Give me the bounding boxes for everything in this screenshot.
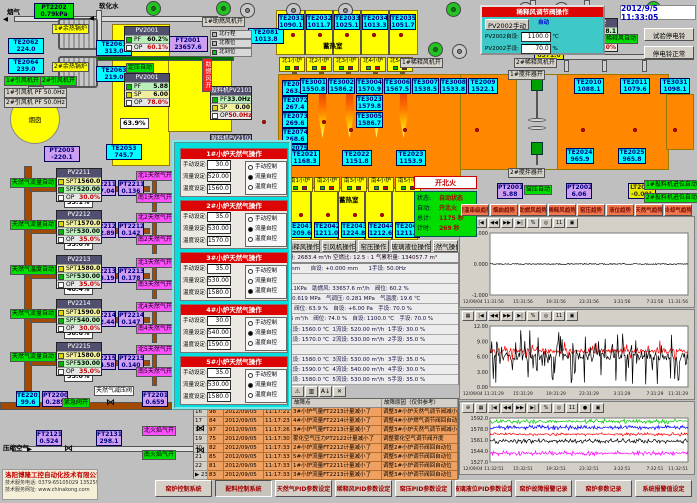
burner-status-leds: [342, 185, 366, 191]
field-label: 手动设定:: [183, 266, 207, 272]
status-lamp: 1#引风机开: [4, 76, 41, 86]
valve-icon[interactable]: ⋈: [196, 447, 205, 456]
pid-tag: PV2001: [125, 27, 169, 35]
pid-row-label: SPT: [66, 178, 77, 185]
pid-faceplate[interactable]: PV2212 SPT 1570.0 SPF 530.00 OP 35.0%: [56, 210, 102, 244]
legend-label: 北行程: [219, 31, 236, 38]
sensor-dot-icon: [380, 213, 384, 217]
tag-value: 1098.1: [661, 86, 689, 93]
pid-row-label: OP: [220, 112, 228, 119]
chart-toolbar-icon[interactable]: ▶|: [527, 403, 539, 413]
chart-toolbar-icon[interactable]: %: [540, 403, 552, 413]
pid-row: SP 0.00: [211, 103, 251, 111]
burner-field: 手动设定:35.0: [183, 212, 245, 222]
tag-indicator: TE3023 1579.8: [356, 95, 383, 111]
trend-button[interactable]: 天然气趋势: [635, 204, 663, 216]
control-mode-radios: 手动控制 流量自控 温度自控: [245, 369, 287, 403]
pid-row-label: SPF: [66, 186, 77, 193]
tag-indicator: TE2025 965.8: [618, 148, 646, 164]
valve-icon[interactable]: ⋈: [64, 445, 73, 454]
alarm-reason: 调整4#小炉燃气调节阀回自动位: [382, 417, 458, 426]
tag-indicator: TE2011 1079.6: [620, 78, 650, 94]
pid-row-label: OP: [66, 281, 79, 288]
sensor-dot-icon: [673, 128, 677, 132]
chart-toolbar-icon[interactable]: ▦: [462, 311, 474, 321]
svg-text:1544.0: 1544.0: [471, 449, 489, 455]
status-lamp: ▶: [26, 445, 33, 453]
radio-icon: [248, 279, 253, 284]
radio-icon: [248, 383, 253, 388]
pid-row: PF 60.2%: [125, 35, 169, 43]
alarm-date: 2012/09/05: [224, 444, 264, 453]
valve-icon[interactable]: ⋈: [106, 399, 115, 408]
control-mode-radios: 手动控制 流量自控 温度自控: [245, 265, 287, 299]
chart-toolbar-icon[interactable]: ●: [579, 403, 591, 413]
pipe-segment: [564, 60, 569, 72]
chart-toolbar-icon[interactable]: ▶▶: [501, 218, 513, 228]
trend-button[interactable]: 液位趋势: [606, 204, 634, 216]
tag-indicator: TE3005 1586.7: [356, 112, 383, 128]
tag-value: 23657.6: [169, 44, 207, 51]
radio-option[interactable]: 温度自控: [246, 286, 286, 296]
valve-icon[interactable]: ⋈: [196, 425, 205, 434]
small-furnace-plate: 北2小炉: [306, 57, 332, 72]
pid-row: SPT 1570.0: [57, 219, 101, 227]
status-lamp: 天然气流量自动: [10, 352, 56, 362]
field-input[interactable]: 35.0: [207, 264, 231, 274]
pid-row-label: SPT: [66, 309, 77, 316]
field-label: 流量设定:: [183, 226, 207, 232]
alarm-fault-point: 1#小炉流量FT2211计量减小了: [292, 462, 382, 471]
field-label: PV2002手设:: [485, 46, 519, 52]
trend-button[interactable]: 窑压趋势: [577, 204, 605, 216]
chart-toolbar-icon[interactable]: ▣: [592, 403, 604, 413]
trend-button[interactable]: 助燃风趋势: [519, 204, 547, 216]
status-lamp: 南火焰气开: [142, 450, 176, 460]
pid-row: OP 35.0%: [57, 367, 101, 375]
radio-option[interactable]: 流量自控: [246, 172, 286, 182]
field-label: 温度设定:: [183, 290, 207, 296]
alarm-fault-point: 3#小炉气量FT2213计量减小了: [292, 426, 382, 435]
radio-option[interactable]: 温度自控: [246, 338, 286, 348]
status-lamp: 2#引风机开: [40, 76, 77, 86]
bell-button[interactable]: 试验停电铃: [644, 28, 694, 41]
svg-text:7:31:56: 7:31:56: [647, 299, 664, 305]
legend-chip-icon: [212, 32, 217, 37]
tag-indicator: TE2044 1212.6: [368, 222, 393, 238]
svg-text:0.00: 0.00: [477, 385, 488, 391]
alarm-code: 75: [208, 435, 224, 444]
nav-button[interactable]: 稀释风PID参数设定: [335, 480, 392, 497]
chart-toolbar-icon[interactable]: %: [527, 311, 539, 321]
small-furnace-label: 北2小炉: [309, 58, 329, 64]
pid-faceplate[interactable]: PV2001 PF 5.88 SP 6.00 OP 78.0%: [124, 73, 170, 107]
burner-field: 手动设定:30.0: [183, 316, 245, 326]
alarm-code: 97: [208, 426, 224, 435]
radio-icon: [248, 341, 253, 346]
pid-row-label: OP: [66, 236, 79, 243]
status-lamp: 1#助燃风机开: [202, 17, 245, 27]
toolbar-icon[interactable]: ✕: [333, 386, 346, 397]
svg-text:19:32:51: 19:32:51: [546, 466, 566, 472]
valve-position-readout: 63.9%: [120, 118, 149, 129]
tag-name: PT2001: [498, 184, 522, 191]
alarm-code: 85: [208, 453, 224, 462]
sensor-dot-icon: [633, 128, 637, 132]
burner-field: 流量设定:530.00: [183, 380, 245, 390]
small-furnace-label: 北4小炉: [363, 58, 383, 64]
pipe-segment: [24, 166, 32, 410]
chart-toolbar-icon[interactable]: |◀: [488, 403, 500, 413]
svg-text:6.00: 6.00: [477, 355, 488, 361]
alarm-date: 2012/09/05: [224, 417, 264, 426]
sensor-dot-icon: [403, 128, 407, 132]
chart-toolbar-icon[interactable]: ◀◀: [501, 403, 513, 413]
sensor-dot-icon: [399, 33, 403, 37]
toolbar-icon[interactable]: ▥: [305, 386, 318, 397]
control-mode-radios: 手动控制 流量自控 温度自控: [245, 317, 287, 351]
radio-option[interactable]: 流量自控: [246, 224, 286, 234]
small-furnace-plate: 北4小炉: [360, 57, 386, 72]
alarm-row[interactable]: 21 85 2012/09/05 11:17:33 5#小炉流量FT2215计量…: [194, 453, 458, 462]
pipe-segment: [642, 60, 647, 72]
chart-toolbar-icon[interactable]: ▣: [566, 218, 578, 228]
alarm-row[interactable]: 18 97 2012/09/05 11:17:26 3#小炉气量FT2213计量…: [194, 426, 458, 435]
chart-toolbar-icon[interactable]: ▶|: [514, 218, 526, 228]
stirrer-shaft-2: [536, 155, 538, 165]
status-lamp: 紧急阀开: [62, 398, 90, 408]
trend-button[interactable]: 稀释风趋势: [548, 204, 576, 216]
tag-value: 269.6: [283, 120, 307, 127]
status-lamp: 蓄热室: [338, 196, 360, 204]
field-input[interactable]: 540.00: [207, 328, 231, 338]
tag-value: 298.1: [97, 438, 121, 445]
status-lamp: 1#投料机进位自动: [644, 180, 697, 190]
chart-toolbar-icon[interactable]: ◀◀: [488, 311, 500, 321]
tag-value: 0.659: [143, 399, 167, 406]
status-lamp: 2#投料机进位自动: [644, 193, 697, 203]
tag-indicator: TE3006 1567.5: [384, 78, 411, 94]
alarm-row[interactable]: ▶ 23 83 2012/09/05 11:17:33 3#小炉流量FT2213…: [194, 471, 458, 480]
alarm-col-fault: 故障点: [292, 399, 382, 407]
svg-text:19:31:56: 19:31:56: [546, 299, 566, 305]
dilution-mode-status: 自动: [538, 19, 549, 28]
tag-name: TE2042: [315, 223, 338, 230]
field-input[interactable]: 530.00: [207, 380, 231, 390]
vendor-website[interactable]: 技术服务网址: www.chinakong.com: [5, 487, 95, 494]
radio-label: 流量自控: [255, 224, 277, 234]
small-furnace-label: 南1小炉: [290, 178, 310, 184]
tag-value: 1051.7: [391, 22, 415, 29]
operation-button[interactable]: 窑压操作: [358, 240, 389, 252]
svg-text:19:31:29: 19:31:29: [546, 391, 566, 397]
svg-text:23:31:29: 23:31:29: [579, 391, 599, 397]
tag-value: 1025.1: [335, 22, 359, 29]
status-lamp: 南3天然气开: [136, 280, 174, 290]
field-input[interactable]: 70.0: [521, 44, 551, 54]
burner-status-leds: [361, 65, 385, 71]
chart-toolbar-icon[interactable]: ▶▶: [501, 311, 513, 321]
field-input[interactable]: 530.00: [207, 224, 231, 234]
radio-option[interactable]: 流量自控: [246, 380, 286, 390]
field-label: 流量设定:: [183, 174, 207, 180]
field-input[interactable]: 530.00: [207, 276, 231, 286]
field-input[interactable]: 1580.0: [207, 392, 231, 402]
chart-toolbar-icon[interactable]: ▣: [566, 311, 578, 321]
pid-row-label: OP: [134, 44, 147, 51]
tag-name: TE2035: [391, 15, 415, 22]
operation-button[interactable]: 天然气操作: [433, 240, 458, 252]
trend-button[interactable]: 窑温串级趋势: [461, 204, 489, 216]
alarm-row[interactable]: 22 81 2012/09/05 11:17:33 1#小炉流量FT2211计量…: [194, 462, 458, 471]
burner-panel: 3#小炉天然气操作 手动设定:35.0 流量设定:530.00 温度设定:158…: [180, 252, 288, 301]
trend-button[interactable]: 冷却气趋势: [664, 204, 692, 216]
status-lamp: 天然气流量自动: [10, 309, 56, 319]
pid-row-value: 5.88: [149, 83, 168, 90]
tag-name: PT2212: [119, 223, 143, 230]
field-input[interactable]: 35.0: [207, 212, 231, 222]
pid-row-value: 78.0%: [147, 99, 168, 106]
chart-toolbar-icon[interactable]: 11: [553, 218, 565, 228]
radio-label: 手动控制: [255, 214, 277, 224]
chart-toolbar-icon[interactable]: ◎: [540, 311, 552, 321]
field-input[interactable]: 520.00: [207, 172, 231, 182]
reversal-legend-item: 北行程: [210, 30, 252, 39]
radio-option[interactable]: 手动控制: [246, 318, 286, 328]
tag-name: TE3007: [413, 79, 438, 86]
chart-toolbar-icon[interactable]: 11: [553, 311, 565, 321]
nav-button[interactable]: 配料控制系统: [215, 480, 272, 497]
stirrer-propeller-1: [528, 118, 546, 122]
burner-field: 流量设定:530.00: [183, 276, 245, 286]
radio-option[interactable]: 流量自控: [246, 328, 286, 338]
status-lamp: 2#余热锅炉: [52, 62, 89, 72]
tag-name: FT2131: [97, 431, 121, 438]
tag-value: 1153.9: [397, 158, 425, 165]
svg-text:1578.0: 1578.0: [471, 427, 489, 433]
sensor-dot-icon: [349, 128, 353, 132]
pid-row-label: SPF: [66, 360, 77, 367]
tag-value: 1586.7: [357, 120, 382, 127]
pid-row-value: 520.00: [77, 186, 100, 193]
chart-toolbar-icon[interactable]: ▶▶: [514, 403, 526, 413]
pid-faceplate[interactable]: PV2214 SPT 1590.0 SPF 540.00 OP 30.0%: [56, 299, 102, 333]
tag-value: 1088.1: [575, 86, 603, 93]
fan-icon: [146, 1, 161, 16]
tag-name: PT2202: [35, 4, 73, 11]
alarm-row[interactable]: 19 75 2012/09/05 11:17:30 雾化空气压力PT2122计量…: [194, 435, 458, 444]
chart-toolbar-icon[interactable]: ▦: [475, 403, 487, 413]
tag-value: 1090.1: [279, 22, 303, 29]
radio-icon: [248, 217, 253, 222]
small-furnace-plate: 北3小炉: [333, 57, 359, 72]
chart-toolbar-icon[interactable]: ▶|: [514, 311, 526, 321]
nav-button[interactable]: 窑炉故障报警记录: [515, 480, 572, 497]
fan-icon: [452, 44, 467, 59]
svg-text:-1.000: -1.000: [472, 293, 488, 299]
pid-row: SPT 1580.0: [57, 351, 101, 359]
nav-button[interactable]: 窑炉控制系统: [155, 480, 212, 497]
pid-faceplate[interactable]: PV2213 SPT 1580.0 SPF 530.00 OP 35.0%: [56, 255, 102, 289]
radio-icon: [248, 321, 253, 326]
field-input[interactable]: 1570.0: [207, 236, 231, 246]
small-furnace-plate: 南3小炉: [341, 177, 367, 192]
toolbar-icon[interactable]: A↓: [319, 386, 332, 397]
pid-faceplate[interactable]: PV2001 PF 60.2% OP 60.1%: [124, 26, 170, 52]
pid-row-value: 35.0%: [79, 368, 100, 375]
tag-indicator: TE2035 1051.7: [390, 14, 416, 30]
pid-row-value: 50.0Hz: [228, 112, 251, 119]
pid-row: SPT 1560.0: [57, 177, 101, 185]
status-lamp: 1#余热锅炉: [52, 24, 89, 34]
pid-row-value: 30.0%: [79, 325, 100, 332]
tag-value: 5.88: [498, 191, 522, 198]
tag-indicator: TE3002 1586.2: [328, 78, 355, 94]
alarm-reason: 调整3#小炉天然气调节阀减小流量: [382, 426, 458, 435]
firing-direction-header: 开北火: [414, 176, 477, 189]
tag-value: 239.0: [9, 66, 43, 73]
sensor-dot-icon: [322, 120, 326, 124]
tag-name: TE2072: [283, 97, 307, 104]
sensor-dot-icon: [299, 213, 303, 217]
field-input[interactable]: 35.0: [207, 368, 231, 378]
field-input[interactable]: 1100.0: [521, 32, 551, 42]
trend-button[interactable]: 烟囱趋势: [490, 204, 518, 216]
radio-option[interactable]: 温度自控: [246, 234, 286, 244]
tag-name: TE2032: [307, 15, 331, 22]
nav-button[interactable]: 系统报警值设定: [635, 480, 692, 497]
tag-name: TE2201: [17, 392, 39, 399]
pid-row: SPF 530.00: [57, 272, 101, 280]
pid-faceplate[interactable]: 投料机PV2101 PF 33.0Hz SP 0.00 OP 50.0Hz: [210, 86, 252, 120]
radio-icon: [248, 269, 253, 274]
field-label: 手动设定:: [183, 370, 207, 376]
pid-row-label: SP: [134, 91, 149, 98]
radio-label: 手动控制: [255, 370, 277, 380]
operation-button[interactable]: 引风机操作: [322, 240, 356, 252]
chart-toolbar-icon[interactable]: %: [527, 218, 539, 228]
radio-option[interactable]: 手动控制: [246, 214, 286, 224]
field-input[interactable]: 30.0: [207, 160, 231, 170]
sensor-dot-icon: [291, 33, 295, 37]
svg-text:3:31:56: 3:31:56: [614, 299, 631, 305]
radio-option[interactable]: 温度自控: [246, 182, 286, 192]
chart-toolbar-icon[interactable]: 11: [566, 403, 578, 413]
status-lamp: 天然气流量自动: [10, 178, 56, 188]
pid-row-value: 35.0%: [79, 236, 100, 243]
operation-button[interactable]: 玻璃液位操作: [391, 240, 431, 252]
tag-indicator: TE3004 1570.9: [356, 78, 383, 94]
chart-toolbar-icon[interactable]: ◎: [540, 218, 552, 228]
bell-button[interactable]: 停电铃正常: [644, 46, 694, 59]
pid-row-value: 1570.0: [77, 220, 100, 227]
chart-toolbar-icon[interactable]: ◎: [553, 403, 565, 413]
reversal-legend-item: 北限位: [210, 39, 252, 48]
nav-button[interactable]: 窑压PID参数设定: [395, 480, 452, 497]
tag-indicator: PT2001 5.88: [497, 183, 523, 199]
burner-panel-title: 3#小炉天然气操作: [181, 253, 287, 263]
radio-option[interactable]: 温度自控: [246, 390, 286, 400]
field-input[interactable]: 1580.0: [207, 288, 231, 298]
small-furnace-label: 南3小炉: [344, 178, 364, 184]
radio-option[interactable]: 手动控制: [246, 162, 286, 172]
burner-panel: 5#小炉天然气操作 手动设定:35.0 流量设定:530.00 温度设定:158…: [180, 356, 288, 405]
radio-option[interactable]: 手动控制: [246, 266, 286, 276]
nav-button[interactable]: 玻璃液位PID参数设定: [455, 480, 512, 497]
alarm-row[interactable]: 20 82 2012/09/05 11:17:33 2#小炉流量FT2212计量…: [194, 444, 458, 453]
alarm-reason: 调整1#小炉调节阀回自动位: [382, 462, 458, 471]
tag-name: TE2009: [469, 79, 497, 86]
tag-name: TE2043: [342, 223, 365, 230]
pid-row: PF 33.0Hz: [211, 95, 251, 103]
tag-indicator: TE3008 1533.8: [440, 78, 467, 94]
radio-option[interactable]: 流量自控: [246, 276, 286, 286]
alarm-row-number: 22: [194, 462, 208, 471]
radio-icon: [248, 165, 253, 170]
tag-value: 99.6: [17, 399, 39, 406]
status-row: 计时: 269 秒: [417, 224, 474, 234]
tag-name: TE3005: [357, 113, 382, 120]
pid-row: SPF 540.00: [57, 316, 101, 324]
tag-value: 1013.8: [249, 36, 283, 43]
field-input[interactable]: 30.0: [207, 316, 231, 326]
svg-text:11:31:29: 11:31:29: [668, 391, 688, 397]
radio-label: 温度自控: [255, 286, 277, 296]
pv2002-manual-button[interactable]: PV2002手动: [485, 19, 529, 30]
tag-indicator: FT2131 298.1: [96, 430, 122, 446]
pid-row: SPF 530.00: [57, 359, 101, 367]
burner-panel-title: 4#小炉天然气操作: [181, 305, 287, 315]
status-lamp: 定压自动: [126, 63, 154, 73]
chart-toolbar-icon[interactable]: |◀: [475, 311, 487, 321]
field-input[interactable]: 1590.0: [207, 340, 231, 350]
tag-indicator: TE3001 1550.8: [300, 78, 327, 94]
tag-name: TE2024: [567, 149, 593, 156]
fan-icon: [428, 42, 443, 57]
svg-text:11:31:56: 11:31:56: [668, 299, 688, 305]
alarm-fault-point: 3#小炉流量FT2213计量减小了: [292, 471, 382, 480]
tag-value: 1522.1: [469, 86, 497, 93]
tag-indicator: TE2031 1090.1: [278, 14, 304, 30]
toolbar-icon[interactable]: ⚠: [291, 386, 304, 397]
status-lamp: 软化水: [98, 2, 120, 10]
chart-toolbar-icon[interactable]: ⊕: [462, 403, 474, 413]
stirrer-motor-2: [531, 142, 543, 155]
small-furnace-plate: 南4小炉: [368, 177, 394, 192]
pid-row-value: 0.00: [235, 104, 250, 111]
chart-toolbar-icon[interactable]: ◀◀: [488, 218, 500, 228]
nav-button[interactable]: 天然气PID参数设定: [275, 480, 332, 497]
tag-value: 1011.7: [307, 22, 331, 29]
pid-row: SPT 1590.0: [57, 308, 101, 316]
radio-option[interactable]: 手动控制: [246, 370, 286, 380]
alarm-code: 82: [208, 444, 224, 453]
sensor-dot-icon: [326, 213, 330, 217]
status-key: 计时:: [417, 224, 439, 234]
alarm-fault-point: 2#小炉流量FT2212计量减小了: [292, 444, 382, 453]
system-clock: 2012/9/5 11:33:05: [620, 5, 696, 20]
tag-name: TE2073: [283, 113, 307, 120]
field-input[interactable]: 1560.0: [207, 184, 231, 194]
pid-faceplate[interactable]: PV2215 SPT 1580.0 SPF 530.00 OP 35.0%: [56, 342, 102, 376]
tag-name: TE3008: [441, 79, 466, 86]
tag-name: TE2031: [279, 15, 303, 22]
nav-button[interactable]: 窑炉参数记录: [575, 480, 632, 497]
status-value: 269 秒: [439, 224, 474, 234]
alarm-row[interactable]: 17 84 2012/09/05 11:17:23 4#小炉流量FT2214计量…: [194, 417, 458, 426]
pid-row-value: 1560.0: [77, 178, 100, 185]
pid-faceplate[interactable]: PV2211 SPT 1560.0 SPF 520.00 OP 30.0%: [56, 168, 102, 202]
